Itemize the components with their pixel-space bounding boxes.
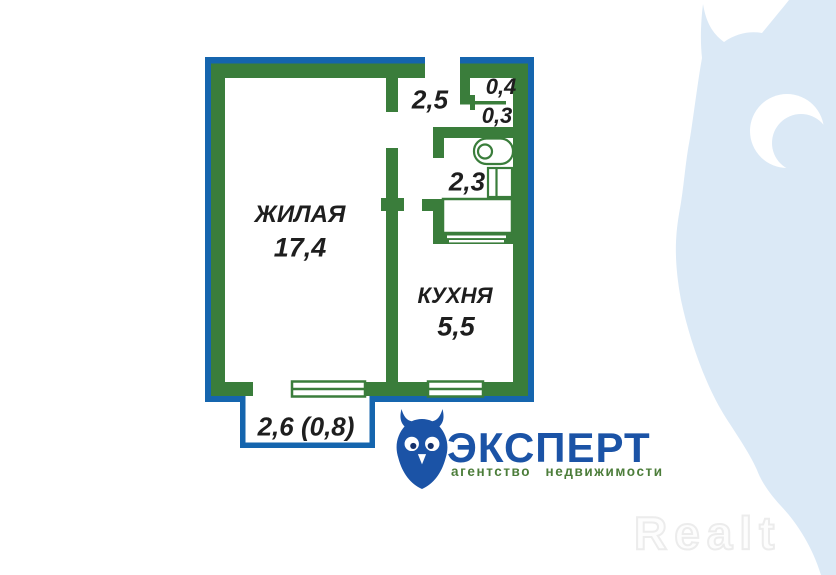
bathtub-icon: [443, 199, 512, 242]
floorplan-page: Realt: [0, 0, 836, 575]
bathroom-area: 2,3: [449, 167, 485, 198]
living-room-label: ЖИЛАЯ: [255, 201, 346, 229]
closet-bottom-area: 0,3: [482, 103, 513, 129]
living-room-area: 17,4: [274, 233, 327, 264]
closet-top-area: 0,4: [486, 74, 517, 100]
kitchen-area: 5,5: [437, 312, 475, 343]
toilet-icon: [474, 139, 513, 165]
brand-text: ЭКСПЕРТ: [447, 428, 651, 468]
owl-icon: [394, 409, 450, 489]
hallway-area: 2,5: [412, 85, 448, 116]
tagline-text: агентство недвижимости: [451, 464, 664, 479]
sink-icon: [488, 168, 512, 197]
kitchen-label: КУХНЯ: [417, 283, 492, 309]
balcony-area: 2,6 (0,8): [258, 412, 355, 443]
